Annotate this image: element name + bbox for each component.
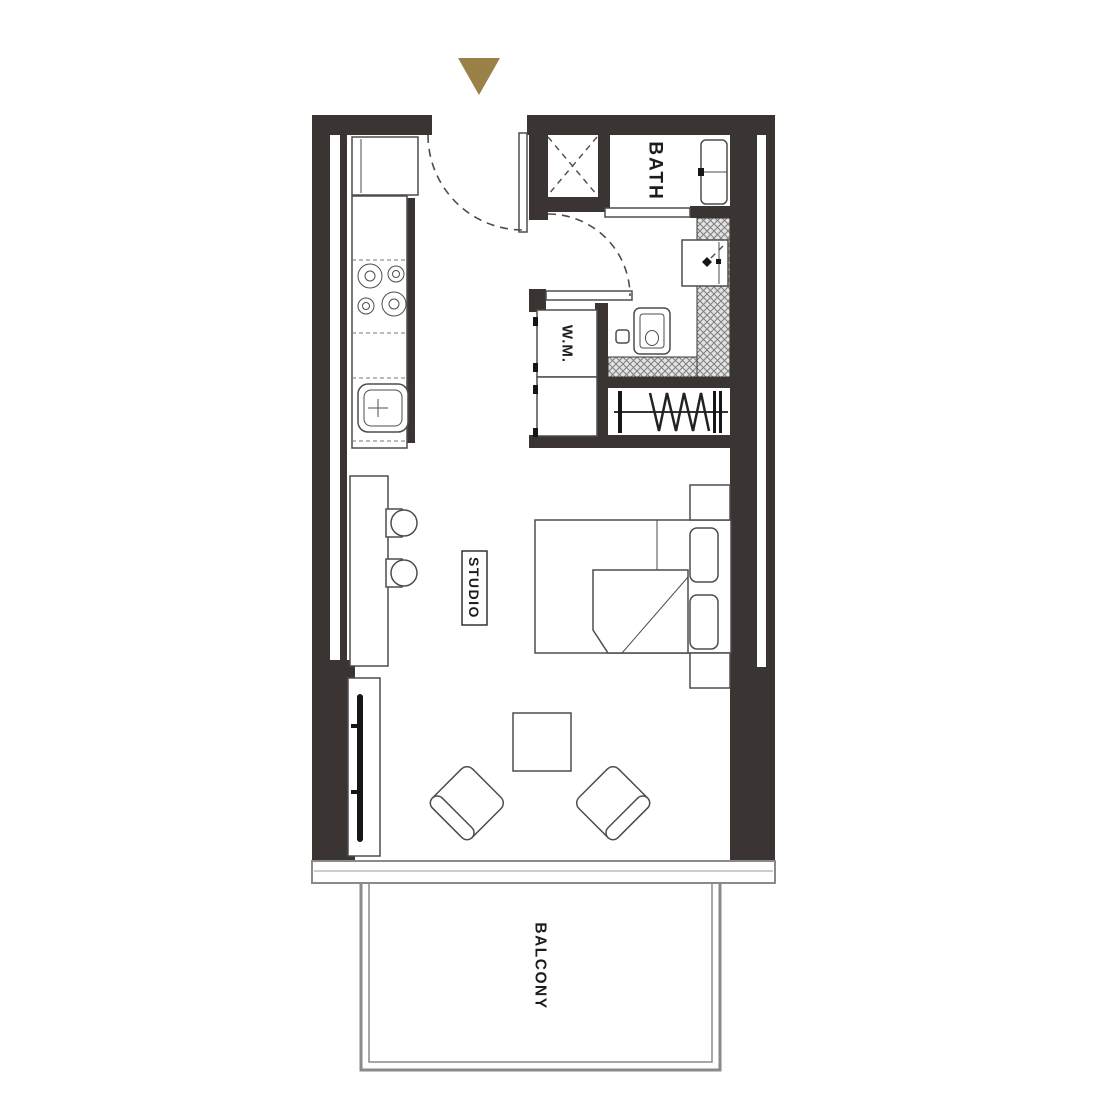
wall-bath-jamb (690, 206, 730, 218)
washing-machine-label: W.M. (559, 325, 576, 363)
armchair (573, 763, 652, 842)
laundry-cabinet (537, 377, 597, 436)
sliding-window (312, 861, 775, 883)
bed (535, 485, 731, 688)
laundry: W.M. (533, 310, 597, 437)
seating-area (427, 713, 652, 843)
balcony-label: BALCONY (532, 922, 549, 1009)
floorplan-drawing: BATH W.M. STUDIO (0, 0, 1100, 1100)
bidet-sprayer-icon (616, 330, 629, 343)
bar-counter (350, 476, 417, 666)
stool (386, 559, 417, 587)
armchair (427, 763, 506, 842)
wc-counter-hatch (608, 357, 697, 377)
wc-door-swing-arc (548, 214, 630, 296)
studio-label: STUDIO (466, 557, 482, 619)
pillow (690, 595, 718, 649)
fridge (352, 137, 418, 195)
wall-right-outer (766, 135, 775, 667)
entrance-door-swing-arc (428, 135, 523, 230)
tv-unit (348, 678, 380, 856)
wall-wm-closet-bottom (529, 435, 730, 448)
wall-right-bottom (730, 667, 775, 862)
closet (614, 391, 728, 433)
floorplan-canvas: BATH W.M. STUDIO (0, 0, 1100, 1100)
nightstand (690, 653, 730, 688)
wall-closet-top (605, 377, 730, 388)
toilet-icon (616, 308, 670, 354)
bathtub-icon (698, 140, 727, 204)
wall-right-inner (730, 135, 757, 667)
sink-icon (358, 384, 408, 432)
coffee-table (513, 713, 571, 771)
wc-door-sill (546, 291, 632, 300)
bath-door-sill (605, 208, 690, 217)
entrance-door-leaf (519, 133, 527, 232)
entrance-arrow-icon (458, 58, 500, 95)
wall-top-right (527, 115, 775, 135)
studio-label-box: STUDIO (462, 551, 487, 625)
bed-blanket (593, 570, 688, 653)
tv-icon (357, 694, 363, 842)
nightstand (690, 485, 730, 520)
wall-shaft-bottom (529, 197, 610, 212)
stool (386, 509, 417, 537)
duct-shaft-icon (548, 137, 597, 195)
washbasin-icon (682, 240, 728, 286)
wall-wc-jamb (529, 289, 546, 312)
balcony: BALCONY (361, 884, 720, 1070)
pillow (690, 528, 718, 582)
bath-label: BATH (645, 141, 666, 200)
wall-left-inner (340, 133, 347, 665)
